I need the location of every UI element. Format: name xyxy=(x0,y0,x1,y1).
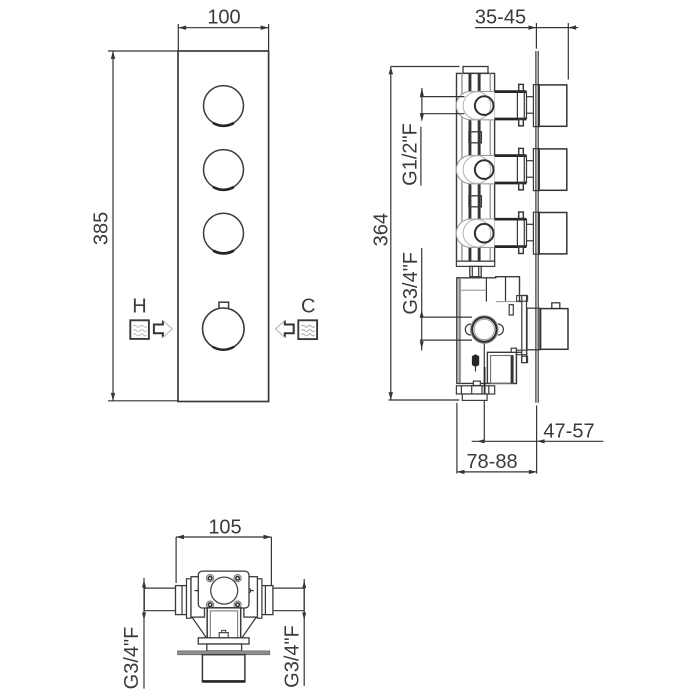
svg-text:100: 100 xyxy=(207,7,240,29)
svg-text:47-57: 47-57 xyxy=(543,421,594,443)
svg-text:35-45: 35-45 xyxy=(475,7,526,29)
svg-text:105: 105 xyxy=(208,517,241,539)
svg-text:G1/2"F: G1/2"F xyxy=(399,123,421,186)
svg-text:385: 385 xyxy=(91,212,113,245)
svg-text:C: C xyxy=(301,295,315,317)
svg-text:364: 364 xyxy=(371,213,393,246)
svg-text:G3/4"F: G3/4"F xyxy=(400,252,422,315)
svg-text:78-88: 78-88 xyxy=(466,451,517,473)
svg-text:G3/4"F: G3/4"F xyxy=(282,625,304,688)
svg-text:G3/4"F: G3/4"F xyxy=(121,627,143,690)
svg-text:H: H xyxy=(132,295,146,317)
